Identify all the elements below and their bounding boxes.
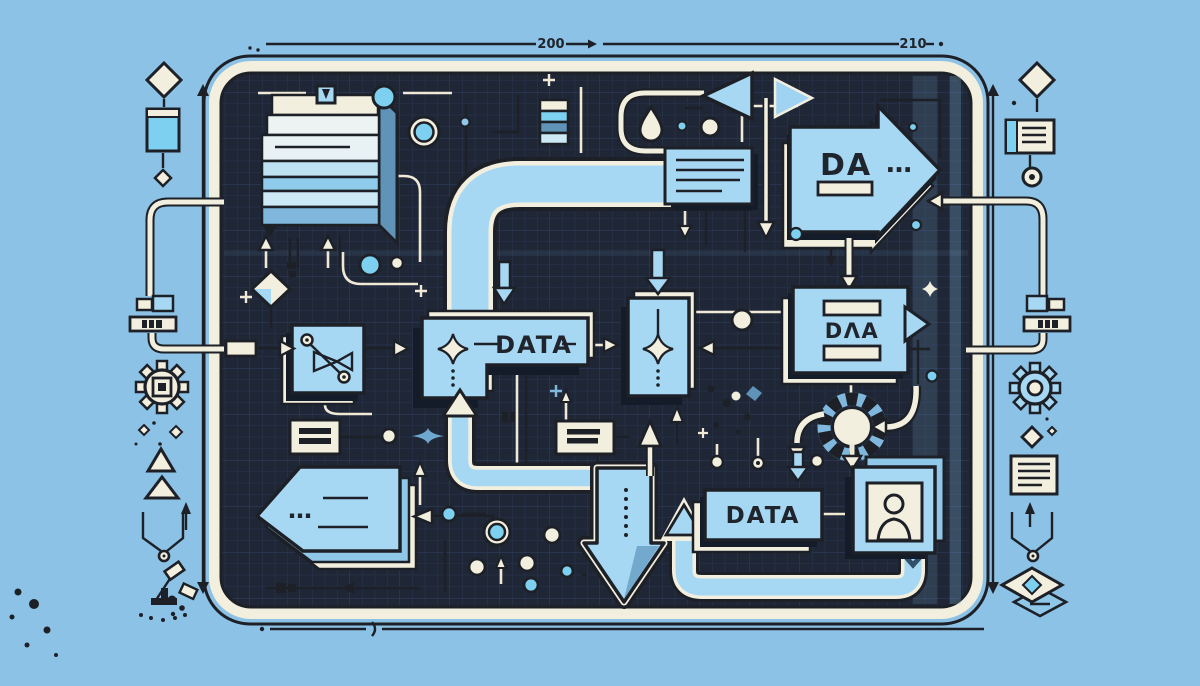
- small-blue-dot: [461, 118, 470, 127]
- gear-outline-icon: [136, 361, 188, 413]
- label-bar: [818, 182, 872, 195]
- gear-blue-icon: [1010, 363, 1060, 413]
- bars-stack-icon: [540, 100, 568, 144]
- tag-ellipsis: …: [288, 496, 312, 524]
- layer-stack-icon: [262, 95, 397, 243]
- blue-dot: [373, 86, 395, 108]
- right-data-box: DΛA: [782, 287, 929, 384]
- illustration-canvas: 200 210: [0, 0, 1200, 686]
- flowchart-illustration: 200 210: [0, 0, 1200, 686]
- person-card: [845, 457, 944, 559]
- right-box-label: DΛA: [825, 319, 879, 343]
- note-box: [665, 148, 758, 210]
- center-box-label: DATA: [495, 331, 573, 359]
- cream-circle: [701, 118, 719, 136]
- dim-label-right: 210: [899, 37, 926, 52]
- document-lines-icon: [1011, 456, 1057, 494]
- target-icon: [1023, 168, 1041, 186]
- blue-dot: [678, 122, 687, 131]
- dim-label-left: 200: [537, 37, 564, 52]
- equals-card-center: [556, 421, 614, 454]
- bottom-box-label: DATA: [726, 503, 801, 529]
- data-box-bottom: DATA: [693, 452, 823, 552]
- cube-icon: [317, 86, 335, 103]
- flow-arrow-label: DA: [820, 148, 872, 183]
- flow-arrow-ellipsis: …: [886, 149, 912, 179]
- ring-circle: [409, 117, 439, 147]
- edge-connector: [226, 341, 256, 356]
- person-head: [885, 495, 903, 513]
